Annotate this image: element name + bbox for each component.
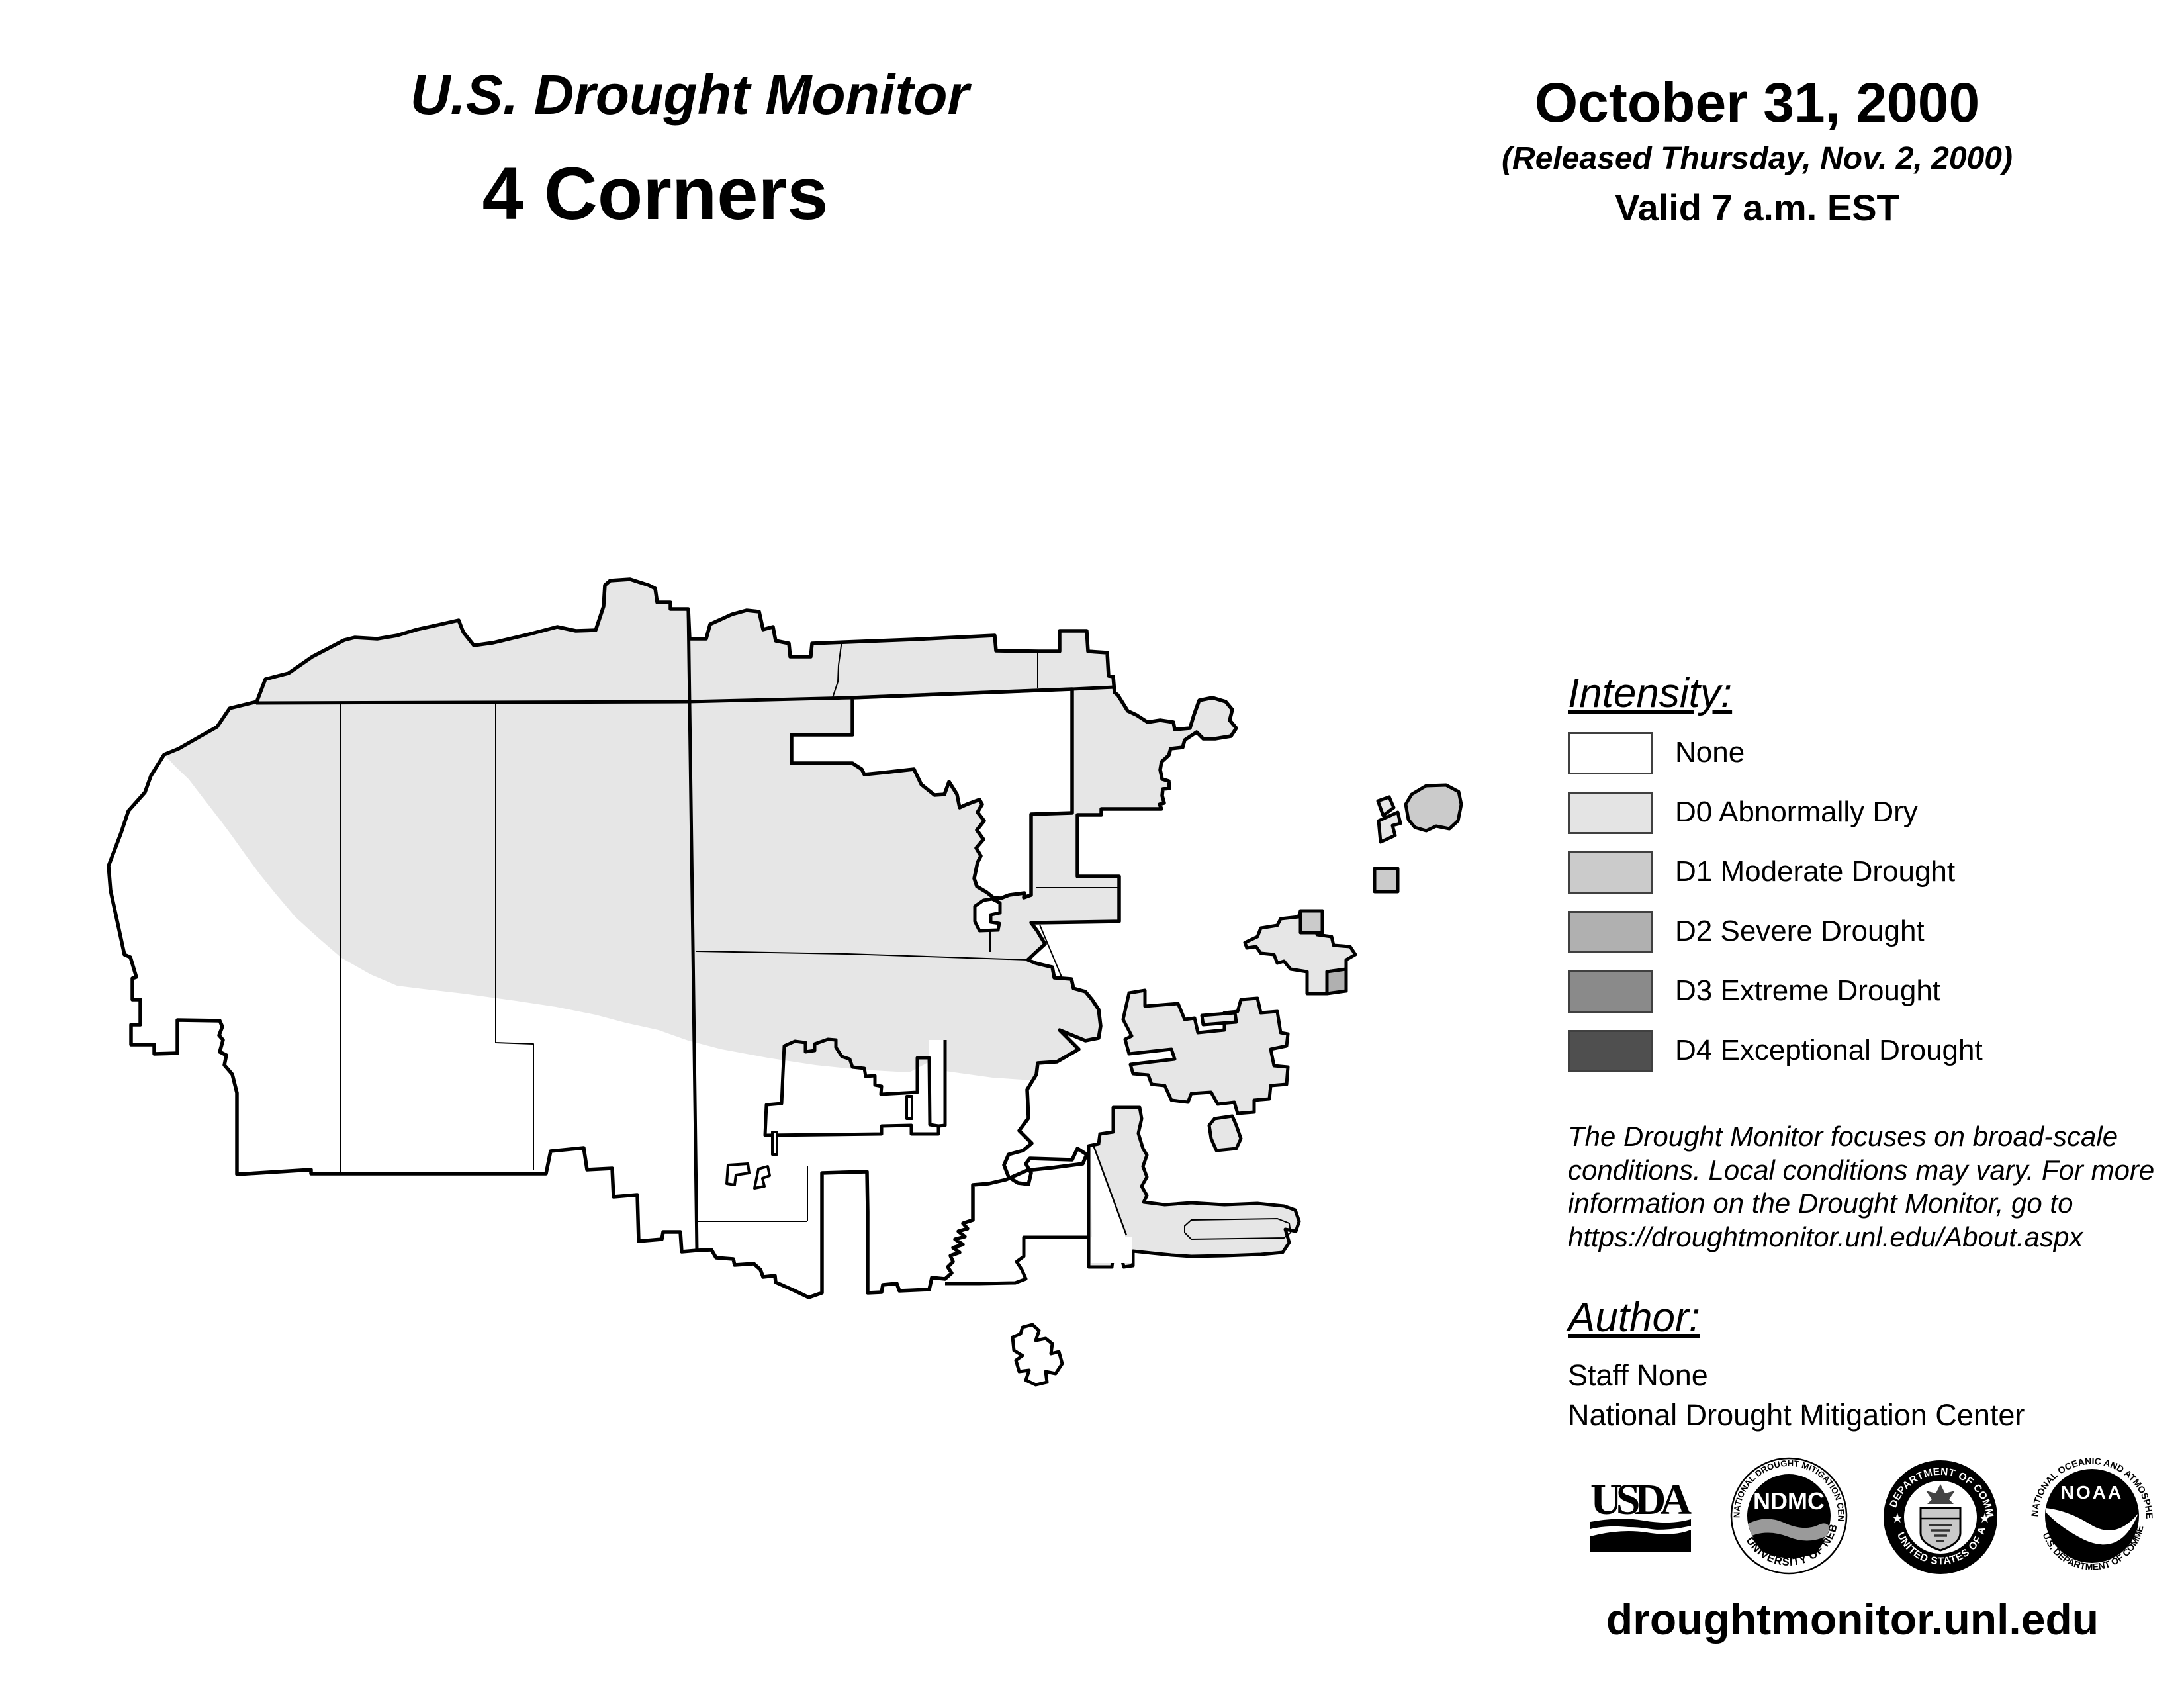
svg-text:★: ★ <box>1979 1511 1991 1526</box>
svg-text:★: ★ <box>1891 1511 1903 1526</box>
svg-text:NDMC: NDMC <box>1753 1487 1825 1515</box>
svg-text:NOAA: NOAA <box>2061 1482 2123 1503</box>
svg-text:USDA: USDA <box>1590 1476 1692 1524</box>
